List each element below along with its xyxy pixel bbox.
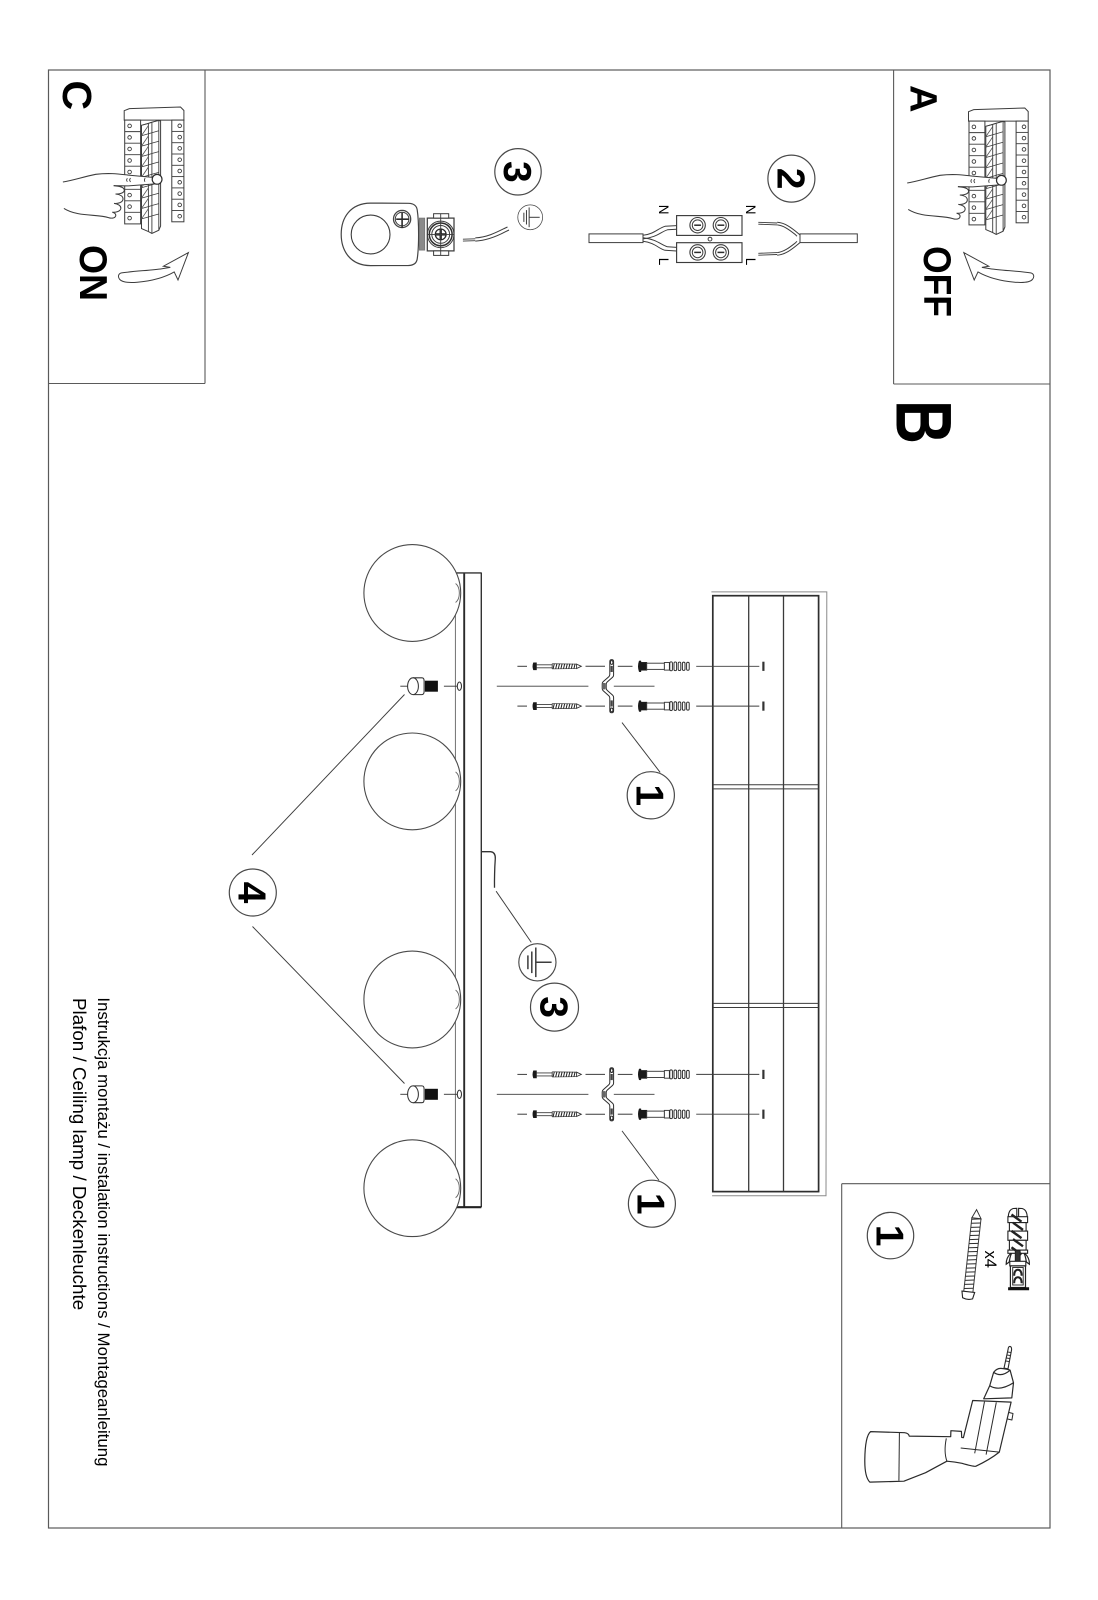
- svg-text:1: 1: [628, 784, 671, 806]
- svg-text:A: A: [902, 85, 944, 112]
- svg-text:ON: ON: [71, 245, 114, 301]
- svg-text:4: 4: [230, 882, 273, 904]
- svg-text:B: B: [880, 400, 969, 444]
- svg-text:1: 1: [867, 1225, 910, 1247]
- svg-text:1: 1: [629, 1193, 672, 1215]
- svg-text:2: 2: [768, 168, 811, 190]
- svg-text:L: L: [743, 258, 758, 266]
- svg-text:OFF: OFF: [915, 246, 958, 317]
- svg-text:N: N: [656, 205, 671, 215]
- svg-text:C: C: [54, 81, 100, 111]
- svg-text:3: 3: [495, 161, 538, 183]
- svg-text:Instrukcja montażu / instalati: Instrukcja montażu / instalation instruc…: [94, 997, 113, 1466]
- svg-text:x4: x4: [981, 1251, 999, 1268]
- svg-text:N: N: [743, 205, 758, 215]
- svg-text:Plafon / Ceiling lamp / Decken: Plafon / Ceiling lamp / Deckenleuchte: [69, 998, 90, 1310]
- svg-text:L: L: [656, 258, 671, 266]
- svg-text:3: 3: [531, 996, 574, 1018]
